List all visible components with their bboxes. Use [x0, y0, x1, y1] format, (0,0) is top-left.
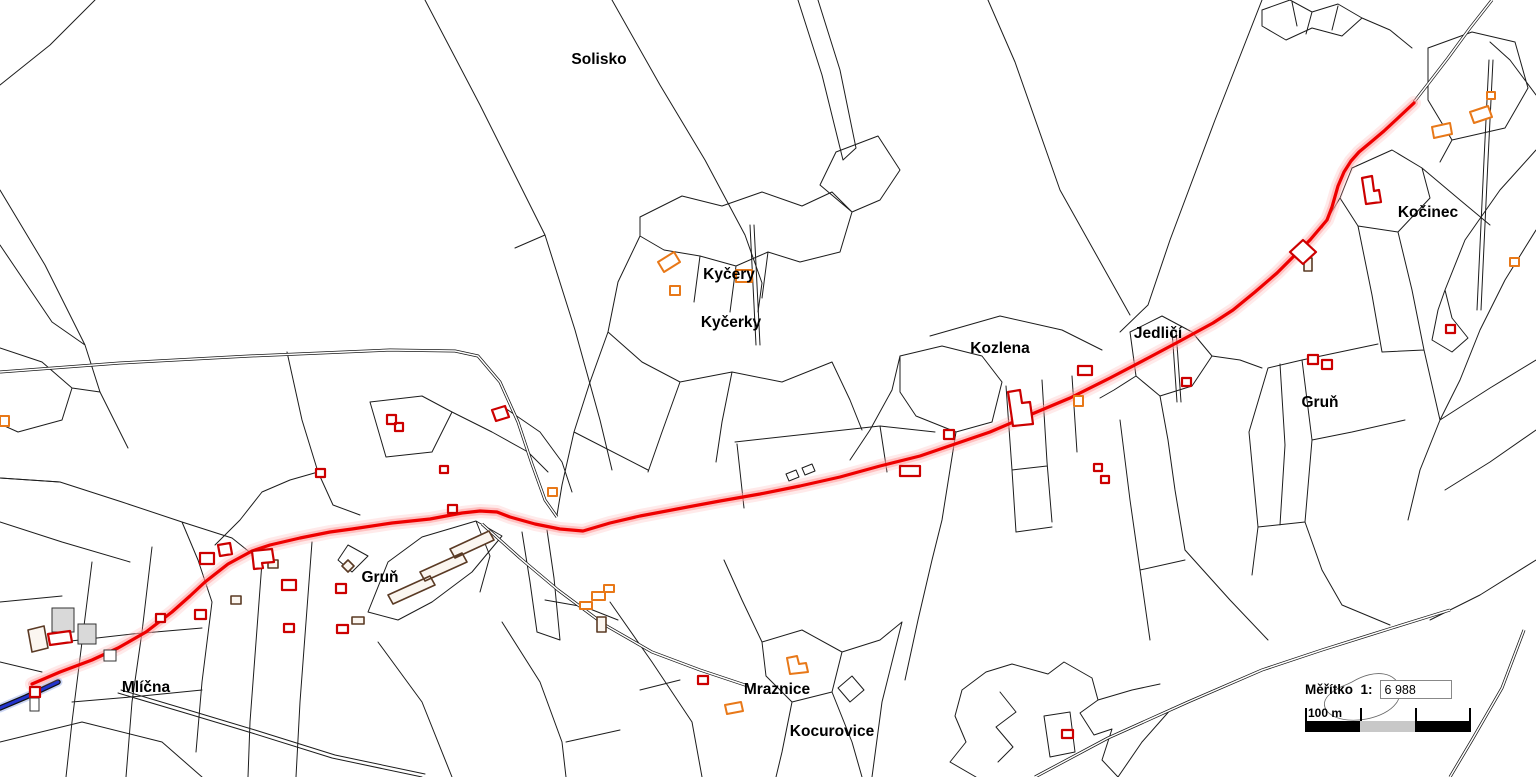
parcels-kocinec: [1249, 150, 1490, 625]
scalebar-tick: [1305, 708, 1307, 721]
place-label-mlicna: Mlíčna: [122, 679, 171, 696]
scale-panel: Měřítko 1: 100 m: [1305, 680, 1495, 734]
scalebar-tick: [1415, 708, 1417, 721]
buildings-red: [30, 176, 1455, 738]
place-label-solisko: Solisko: [571, 51, 626, 68]
parcel-boundaries: [0, 0, 1536, 777]
road-lines: [0, 0, 1524, 777]
place-label-grun-east: Gruň: [1301, 394, 1338, 411]
place-label-grun-west: Gruň: [361, 569, 398, 586]
place-label-kocurovice: Kocurovice: [790, 723, 875, 740]
place-label-kozlena: Kozlena: [970, 340, 1030, 357]
parcels-south-center: [378, 560, 902, 777]
place-label-kycery: Kyčery: [703, 266, 755, 283]
scalebar-segment: [1415, 721, 1471, 732]
buildings-brown: [28, 258, 1312, 652]
place-labels-layer: SoliskoKyčeryKyčerkyKozlenaJedličíKočine…: [122, 51, 1459, 740]
map-viewport: SoliskoKyčeryKyčerkyKozlenaJedličíKočine…: [0, 0, 1536, 777]
parcels-star-woodlot: [950, 662, 1172, 777]
scalebar-tick: [1360, 708, 1362, 721]
place-label-jedlici: Jedličí: [1134, 325, 1183, 342]
parcels-kozlena: [850, 316, 1102, 680]
scalebar-tick: [1469, 708, 1471, 721]
parcels-top-left: [0, 0, 128, 482]
scalebar-segment: [1305, 721, 1360, 732]
scale-label: Měřítko 1:: [1305, 682, 1373, 697]
place-label-kocinec: Kočinec: [1398, 204, 1459, 221]
scalebar-segment: [1360, 721, 1415, 732]
scalebar: 100 m: [1305, 706, 1471, 734]
place-label-kycerky: Kyčerky: [701, 314, 762, 331]
scalebar-label: 100 m: [1308, 706, 1342, 720]
scale-input[interactable]: [1380, 680, 1452, 699]
cadastral-map-canvas[interactable]: SoliskoKyčeryKyčerkyKozlenaJedličíKočine…: [0, 0, 1536, 777]
place-label-mraznice: Mraznice: [744, 681, 811, 698]
parcels-top: [425, 0, 1262, 470]
buildings-orange: [0, 92, 1519, 714]
